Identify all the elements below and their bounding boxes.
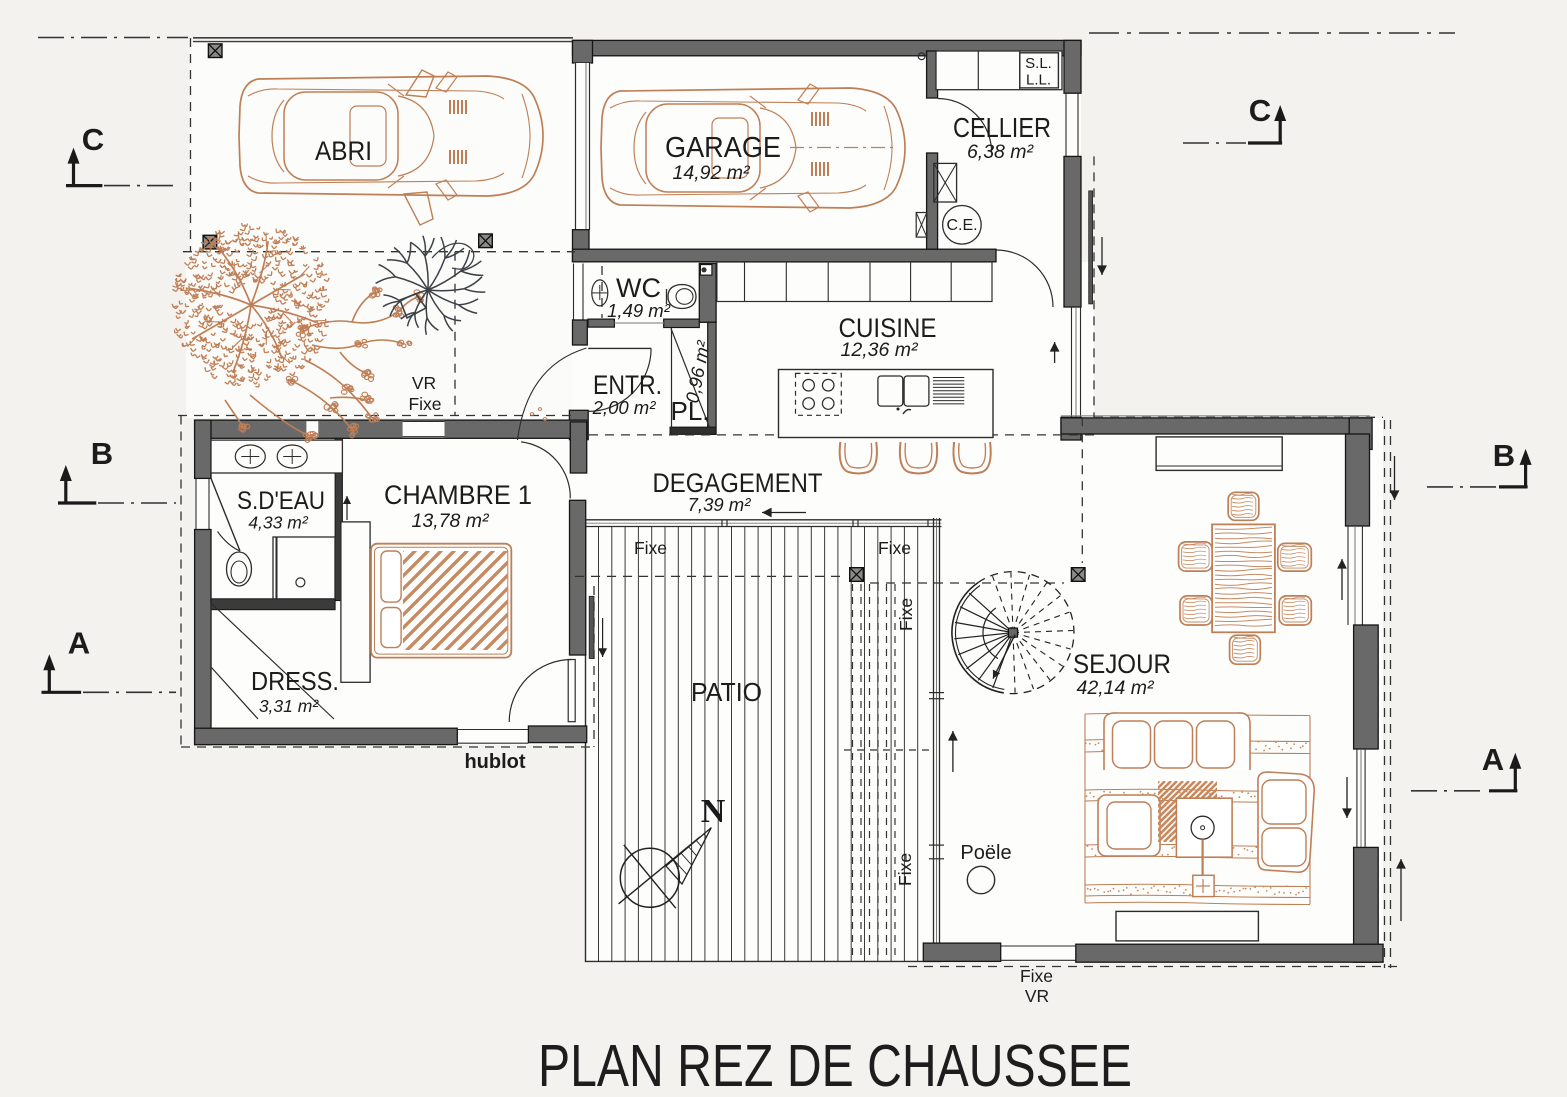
svg-text:ABRI: ABRI — [315, 136, 372, 166]
svg-text:6,38 m²: 6,38 m² — [967, 141, 1035, 163]
svg-text:Fixe: Fixe — [878, 538, 911, 558]
svg-text:N: N — [701, 793, 726, 830]
svg-text:1,49 m²: 1,49 m² — [607, 300, 671, 321]
svg-text:C.E.: C.E. — [946, 217, 977, 234]
svg-text:Poële: Poële — [960, 842, 1011, 864]
svg-text:CELLIER: CELLIER — [953, 112, 1051, 143]
svg-text:VR: VR — [412, 373, 436, 393]
svg-text:C: C — [1249, 93, 1271, 128]
svg-text:ENTR.: ENTR. — [593, 370, 662, 400]
svg-text:2,00 m²: 2,00 m² — [592, 397, 657, 418]
svg-text:WC: WC — [616, 273, 661, 303]
svg-text:GARAGE: GARAGE — [665, 132, 781, 164]
svg-text:SEJOUR: SEJOUR — [1073, 649, 1171, 679]
svg-text:Fixe: Fixe — [895, 853, 915, 886]
svg-text:S.L.: S.L. — [1025, 55, 1052, 72]
svg-text:L.L.: L.L. — [1026, 72, 1051, 89]
svg-text:A: A — [68, 626, 90, 661]
svg-text:CHAMBRE 1: CHAMBRE 1 — [384, 480, 532, 510]
svg-text:B: B — [1493, 438, 1515, 473]
svg-text:3,31 m²: 3,31 m² — [259, 696, 319, 716]
svg-text:12,36 m²: 12,36 m² — [841, 339, 919, 361]
svg-text:hublot: hublot — [464, 751, 525, 773]
svg-text:DRESS.: DRESS. — [251, 666, 339, 696]
svg-text:C: C — [82, 122, 104, 157]
svg-text:A: A — [1482, 742, 1504, 777]
svg-text:Fixe: Fixe — [408, 394, 441, 414]
svg-text:Fixe: Fixe — [634, 538, 667, 558]
svg-text:B: B — [91, 436, 113, 471]
svg-text:13,78 m²: 13,78 m² — [412, 510, 490, 532]
svg-text:S.D'EAU: S.D'EAU — [237, 487, 325, 515]
svg-text:7,39 m²: 7,39 m² — [688, 494, 752, 515]
svg-text:14,92 m²: 14,92 m² — [673, 162, 751, 184]
svg-text:VR: VR — [1025, 986, 1049, 1006]
svg-text:4,33 m²: 4,33 m² — [248, 513, 308, 533]
svg-text:Fixe: Fixe — [1020, 966, 1053, 986]
svg-text:PLAN REZ DE CHAUSSEE: PLAN REZ DE CHAUSSEE — [538, 1033, 1132, 1097]
svg-text:Fixe: Fixe — [896, 598, 916, 631]
svg-text:PATIO: PATIO — [691, 677, 762, 707]
svg-text:42,14 m²: 42,14 m² — [1077, 677, 1155, 699]
